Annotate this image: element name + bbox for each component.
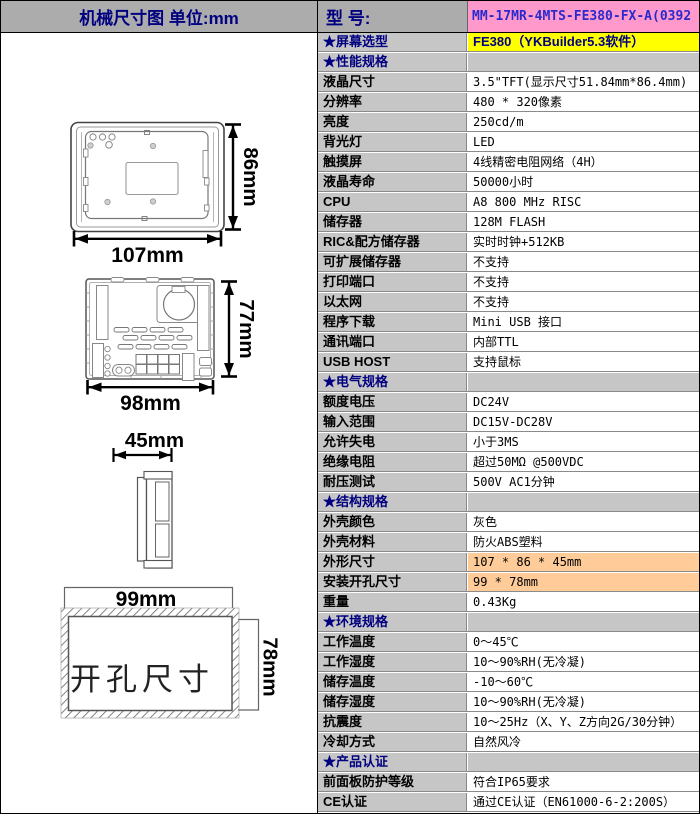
side-depth-label: 45mm: [125, 429, 184, 452]
spec-label: 触摸屏: [318, 153, 467, 171]
cutout-height-label: 78mm: [259, 637, 282, 696]
rear-view-drawing: 77mm 98mm: [86, 278, 258, 416]
spec-label: CPU: [318, 193, 467, 211]
spec-value: 符合IP65要求: [468, 773, 699, 791]
spec-row: 外壳颜色灰色: [318, 513, 699, 532]
cutout-drawing: 99mm 开孔尺寸 78mm: [61, 588, 282, 719]
spec-row: ★性能规格: [318, 53, 699, 72]
spec-row: ★结构规格: [318, 493, 699, 512]
spec-row: 可扩展储存器不支持: [318, 253, 699, 272]
spec-label: 储存温度: [318, 673, 467, 691]
spec-label: 工作湿度: [318, 653, 467, 671]
spec-row: 额度电压DC24V: [318, 393, 699, 412]
cutout-width-label: 99mm: [116, 588, 177, 611]
spec-label: 储存湿度: [318, 693, 467, 711]
front-height-label: 86mm: [239, 147, 262, 206]
cutout-caption: 开孔尺寸: [70, 662, 214, 697]
spec-row: 触摸屏4线精密电阻网络（4H）: [318, 153, 699, 172]
spec-label: 背光灯: [318, 133, 467, 151]
spec-label: 安装开孔尺寸: [318, 573, 467, 591]
spec-value: 500V AC1分钟: [468, 473, 699, 491]
spec-row: 分辨率480 * 320像素: [318, 93, 699, 112]
spec-sheet-page: 机械尺寸图 单位:mm 型 号: MM-17MR-4MTS-FE380-FX-A…: [0, 0, 700, 814]
spec-value: -10～60℃: [468, 673, 699, 691]
spec-value: 超过50MΩ @500VDC: [468, 453, 699, 471]
spec-value: 4线精密电阻网络（4H）: [468, 153, 699, 171]
spec-value: 灰色: [468, 513, 699, 531]
spec-value: [468, 613, 699, 631]
spec-row: RIC&配方储存器实时时钟+512KB: [318, 233, 699, 252]
spec-label: 液晶寿命: [318, 173, 467, 191]
model-number-label: 型 号:: [318, 1, 467, 32]
spec-label: 允许失电: [318, 433, 467, 451]
spec-label: 工作温度: [318, 633, 467, 651]
spec-value: [468, 373, 699, 391]
spec-label: ★性能规格: [318, 53, 467, 71]
spec-label: 额度电压: [318, 393, 467, 411]
spec-value: A8 800 MHz RISC: [468, 193, 699, 211]
spec-row: 背光灯LED: [318, 133, 699, 152]
spec-label: ★结构规格: [318, 493, 467, 511]
spec-value: 不支持: [468, 293, 699, 311]
spec-row: 程序下载Mini USB 接口: [318, 313, 699, 332]
spec-value: 99 * 78mm: [468, 573, 699, 591]
mechanical-diagram-panel: 86mm 107mm: [1, 33, 318, 813]
spec-label: USB HOST: [318, 353, 467, 371]
spec-value: 10～90%RH(无冷凝): [468, 653, 699, 671]
spec-row: 耐压测试500V AC1分钟: [318, 473, 699, 492]
spec-label: CE认证: [318, 793, 467, 811]
spec-value: 0～45℃: [468, 633, 699, 651]
spec-value: 0.43Kg: [468, 593, 699, 611]
spec-value: DC24V: [468, 393, 699, 411]
spec-row: 亮度250cd/m: [318, 113, 699, 132]
spec-value: DC15V-DC28V: [468, 413, 699, 431]
spec-row: 工作湿度10～90%RH(无冷凝): [318, 653, 699, 672]
spec-row: 通讯端口内部TTL: [318, 333, 699, 352]
spec-row: 液晶尺寸3.5"TFT(显示尺寸51.84mm*86.4mm): [318, 73, 699, 92]
spec-value: 通过CE认证（EN61000-6-2:200S）: [468, 793, 699, 811]
spec-label: 可扩展储存器: [318, 253, 467, 271]
spec-label: 以太网: [318, 293, 467, 311]
spec-label: ★产品认证: [318, 753, 467, 771]
spec-row: ★产品认证: [318, 753, 699, 772]
spec-label: 通讯端口: [318, 333, 467, 351]
spec-label: 亮度: [318, 113, 467, 131]
spec-rows: ★屏幕选型FE380（YKBuilder5.3软件）★性能规格液晶尺寸3.5"T…: [318, 33, 699, 812]
spec-label: 储存器: [318, 213, 467, 231]
content-area: 86mm 107mm: [1, 33, 699, 813]
spec-value: 107 * 86 * 45mm: [468, 553, 699, 571]
spec-row: ★电气规格: [318, 373, 699, 392]
spec-label: ★电气规格: [318, 373, 467, 391]
spec-value: 10～90%RH(无冷凝): [468, 693, 699, 711]
spec-value: 128M FLASH: [468, 213, 699, 231]
spec-label: 前面板防护等级: [318, 773, 467, 791]
spec-label: 输入范围: [318, 413, 467, 431]
spec-row: 允许失电小于3MS: [318, 433, 699, 452]
spec-value: 不支持: [468, 273, 699, 291]
spec-row: 绝缘电阻超过50MΩ @500VDC: [318, 453, 699, 472]
spec-row: CPUA8 800 MHz RISC: [318, 193, 699, 212]
spec-value: 防火ABS塑料: [468, 533, 699, 551]
spec-label: 程序下载: [318, 313, 467, 331]
spec-value: 50000小时: [468, 173, 699, 191]
rear-width-label: 98mm: [120, 392, 181, 415]
spec-row: 液晶寿命50000小时: [318, 173, 699, 192]
spec-value: [468, 493, 699, 511]
side-view-drawing: 45mm: [114, 429, 185, 568]
rear-height-label: 77mm: [235, 299, 258, 358]
spec-value: [468, 53, 699, 71]
spec-label: 耐压测试: [318, 473, 467, 491]
spec-label: 冷却方式: [318, 733, 467, 751]
spec-row: 以太网不支持: [318, 293, 699, 312]
spec-value: 不支持: [468, 253, 699, 271]
spec-row: 打印端口不支持: [318, 273, 699, 292]
spec-label: 液晶尺寸: [318, 73, 467, 91]
spec-row: 前面板防护等级符合IP65要求: [318, 773, 699, 792]
spec-value: 小于3MS: [468, 433, 699, 451]
mechanical-diagram: 86mm 107mm: [1, 33, 317, 813]
spec-value: 3.5"TFT(显示尺寸51.84mm*86.4mm): [468, 73, 699, 91]
spec-value: 10～25Hz（X、Y、Z方向2G/30分钟）: [468, 713, 699, 731]
spec-label: RIC&配方储存器: [318, 233, 467, 251]
spec-row: ★屏幕选型FE380（YKBuilder5.3软件）: [318, 33, 699, 52]
spec-row: 抗震度10～25Hz（X、Y、Z方向2G/30分钟）: [318, 713, 699, 732]
header-bar: 机械尺寸图 单位:mm 型 号: MM-17MR-4MTS-FE380-FX-A…: [1, 1, 699, 33]
mechanical-title: 机械尺寸图 单位:mm: [1, 1, 318, 32]
spec-label: 外形尺寸: [318, 553, 467, 571]
spec-row: 外形尺寸107 * 86 * 45mm: [318, 553, 699, 572]
spec-row: 储存器128M FLASH: [318, 213, 699, 232]
spec-row: 输入范围DC15V-DC28V: [318, 413, 699, 432]
front-width-label: 107mm: [111, 244, 183, 267]
spec-label: 外壳颜色: [318, 513, 467, 531]
spec-value: Mini USB 接口: [468, 313, 699, 331]
spec-label: 分辨率: [318, 93, 467, 111]
spec-row: 储存湿度10～90%RH(无冷凝): [318, 693, 699, 712]
spec-label: 外壳材料: [318, 533, 467, 551]
spec-value: 内部TTL: [468, 333, 699, 351]
spec-row: 工作温度0～45℃: [318, 633, 699, 652]
spec-value: 实时时钟+512KB: [468, 233, 699, 251]
spec-label: 抗震度: [318, 713, 467, 731]
spec-label: ★屏幕选型: [318, 33, 467, 51]
spec-label: ★环境规格: [318, 613, 467, 631]
spec-table: ★屏幕选型FE380（YKBuilder5.3软件）★性能规格液晶尺寸3.5"T…: [318, 33, 699, 813]
front-view-drawing: 86mm 107mm: [71, 123, 262, 268]
spec-row: 储存温度-10～60℃: [318, 673, 699, 692]
spec-row: CE认证通过CE认证（EN61000-6-2:200S）: [318, 793, 699, 812]
spec-row: 安装开孔尺寸99 * 78mm: [318, 573, 699, 592]
spec-value: [468, 753, 699, 771]
spec-value: 480 * 320像素: [468, 93, 699, 111]
spec-label: 打印端口: [318, 273, 467, 291]
spec-label: 绝缘电阻: [318, 453, 467, 471]
spec-value: 250cd/m: [468, 113, 699, 131]
spec-row: USB HOST支持鼠标: [318, 353, 699, 372]
model-number-value: MM-17MR-4MTS-FE380-FX-A(0392: [467, 1, 699, 32]
spec-value: FE380（YKBuilder5.3软件）: [468, 33, 699, 51]
spec-row: 外壳材料防火ABS塑料: [318, 533, 699, 552]
spec-value: 支持鼠标: [468, 353, 699, 371]
spec-row: ★环境规格: [318, 613, 699, 632]
spec-label: 重量: [318, 593, 467, 611]
spec-value: LED: [468, 133, 699, 151]
spec-row: 冷却方式自然风冷: [318, 733, 699, 752]
spec-value: 自然风冷: [468, 733, 699, 751]
spec-row: 重量0.43Kg: [318, 593, 699, 612]
